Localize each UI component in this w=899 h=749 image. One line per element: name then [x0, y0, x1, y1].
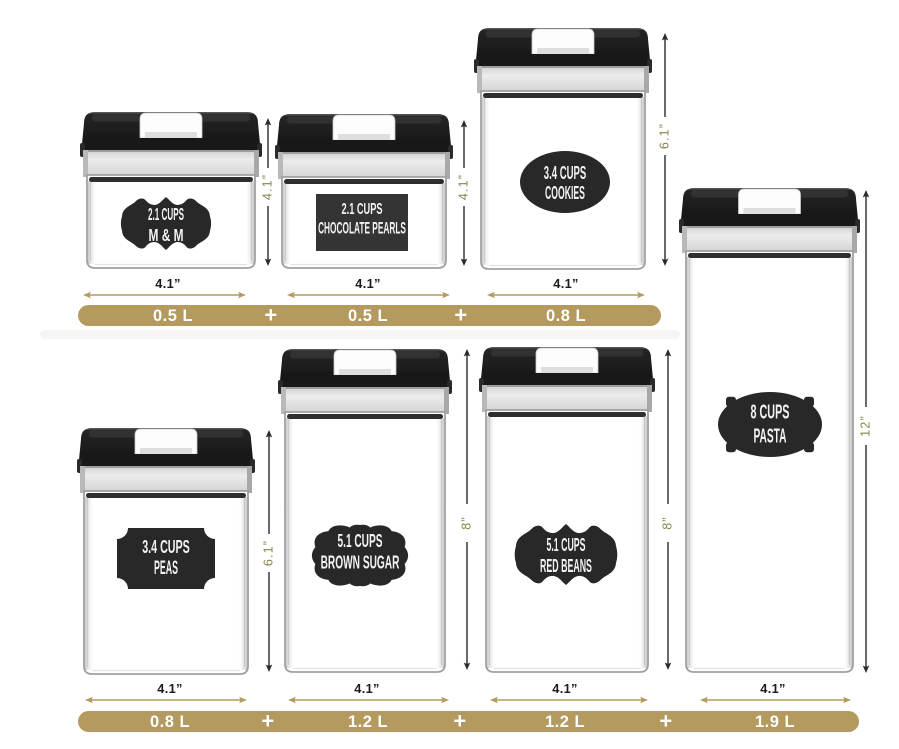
svg-text:6.1”: 6.1” [262, 540, 276, 566]
svg-text:4.1”: 4.1” [552, 681, 577, 696]
svg-text:4.1”: 4.1” [355, 276, 380, 291]
svg-text:+: + [264, 303, 277, 328]
svg-text:PASTA: PASTA [754, 425, 787, 448]
svg-text:4.1”: 4.1” [354, 681, 379, 696]
svg-text:8”: 8” [460, 516, 474, 530]
svg-text:12”: 12” [859, 415, 873, 437]
svg-text:4.1”: 4.1” [261, 174, 275, 200]
svg-text:2.1 CUPS: 2.1 CUPS [148, 205, 184, 224]
svg-text:4.1”: 4.1” [553, 276, 578, 291]
svg-text:+: + [261, 709, 274, 734]
svg-text:6.1”: 6.1” [658, 123, 672, 149]
svg-text:4.1”: 4.1” [457, 174, 471, 200]
svg-text:COOKIES: COOKIES [545, 184, 585, 205]
svg-text:5.1 CUPS: 5.1 CUPS [546, 536, 585, 556]
svg-text:1.2 L: 1.2 L [545, 713, 585, 731]
svg-text:M & M: M & M [148, 226, 183, 246]
svg-text:3.4 CUPS: 3.4 CUPS [544, 164, 587, 184]
svg-text:0.8 L: 0.8 L [150, 713, 190, 731]
svg-text:5.1 CUPS: 5.1 CUPS [338, 532, 383, 552]
svg-text:0.8 L: 0.8 L [546, 307, 586, 325]
svg-text:4.1”: 4.1” [157, 681, 182, 696]
svg-text:RED BEANS: RED BEANS [540, 557, 592, 577]
svg-text:2.1 CUPS: 2.1 CUPS [342, 201, 383, 218]
svg-text:BROWN SUGAR: BROWN SUGAR [321, 554, 400, 574]
svg-text:4.1”: 4.1” [155, 276, 180, 291]
svg-text:PEAS: PEAS [154, 557, 178, 579]
svg-text:CHOCOLATE PEARLS: CHOCOLATE PEARLS [318, 218, 406, 237]
svg-text:1.2 L: 1.2 L [348, 713, 388, 731]
svg-text:1.9 L: 1.9 L [755, 713, 795, 731]
svg-text:0.5 L: 0.5 L [348, 307, 388, 325]
svg-text:+: + [453, 709, 466, 734]
svg-text:3.4 CUPS: 3.4 CUPS [142, 537, 190, 558]
svg-text:+: + [454, 303, 467, 328]
svg-text:4.1”: 4.1” [760, 681, 785, 696]
svg-text:8 CUPS: 8 CUPS [751, 401, 790, 423]
svg-text:0.5 L: 0.5 L [153, 307, 193, 325]
svg-text:8”: 8” [661, 516, 675, 530]
svg-text:+: + [659, 709, 672, 734]
